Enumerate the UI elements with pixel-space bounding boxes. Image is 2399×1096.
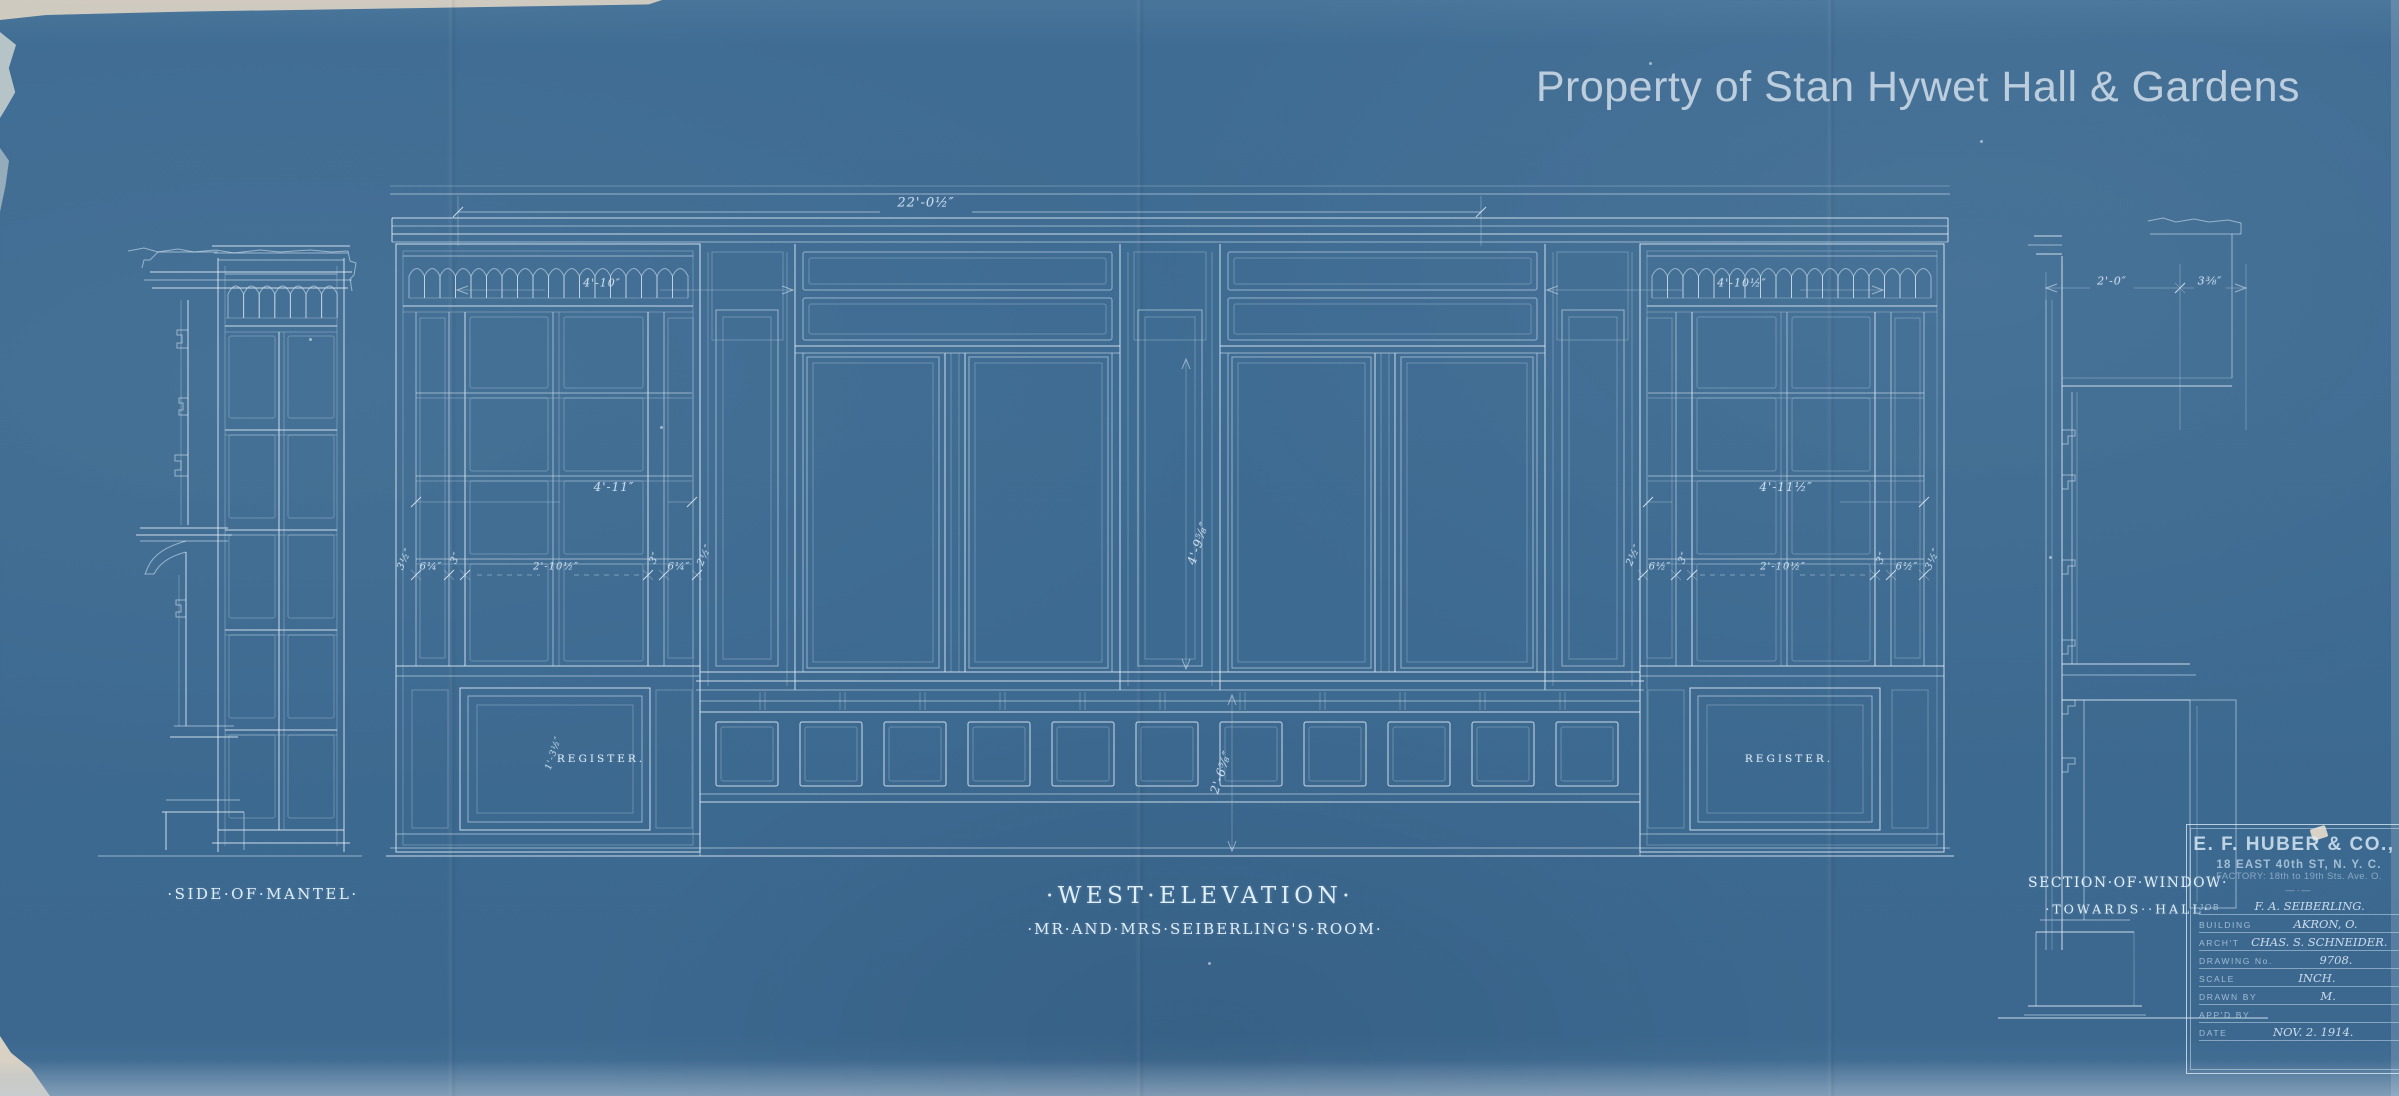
west-elevation-title: ·WEST·ELEVATION· (1046, 883, 1354, 909)
title-block: E. F. HUBER & CO., 18 EAST 40th ST, N. Y… (2186, 824, 2399, 1074)
title-block-row-label: JOB (2199, 902, 2220, 914)
title-block-rows: JOBF. A. SEIBERLING.BUILDINGAKRON, O.ARC… (2199, 897, 2399, 1041)
title-block-row-label: DRAWING No. (2199, 956, 2273, 968)
dimension-label: 6½″ (1649, 562, 1672, 573)
title-block-row-label: SCALE (2199, 974, 2235, 986)
dimension-label: 2'-10½″ (533, 562, 579, 573)
title-block-row-value: AKRON, O. (2252, 918, 2399, 932)
title-block-address2: FACTORY: 18th to 19th Sts. Ave. O. (2199, 871, 2399, 882)
dimension-label: 4'-11″ (594, 480, 635, 494)
dimension-label: 6¼″ (668, 562, 691, 573)
mantel-section-drawing (98, 246, 362, 856)
watermark-text: Property of Stan Hywet Hall & Gardens (1448, 62, 2300, 114)
register-label-right: REGISTER. (1745, 753, 1833, 765)
title-block-row-value: F. A. SEIBERLING. (2220, 900, 2399, 914)
register-label-left: REGISTER. (557, 753, 645, 765)
dimension-label: 6½″ (1896, 562, 1919, 573)
title-block-row: APP'D BY (2199, 1005, 2399, 1023)
title-block-row-value: INCH. (2235, 972, 2399, 986)
title-block-row: ARCH'TCHAS. S. SCHNEIDER. (2199, 933, 2399, 951)
title-block-row-value: CHAS. S. SCHNEIDER. (2240, 936, 2399, 950)
title-block-row-value: NOV. 2. 1914. (2227, 1026, 2399, 1040)
title-block-row: SCALEINCH. (2199, 969, 2399, 987)
window-pair-left (795, 252, 1120, 672)
title-block-divider: —·— (2199, 885, 2399, 895)
title-block-company: E. F. HUBER & CO., (2189, 834, 2399, 856)
title-block-row-value (2250, 1021, 2399, 1022)
side-of-mantel-label: ·SIDE·OF·MANTEL· (167, 885, 358, 903)
title-block-row: JOBF. A. SEIBERLING. (2199, 897, 2399, 915)
title-block-row-label: DRAWN BY (2199, 992, 2257, 1004)
title-block-row-label: APP'D BY (2199, 1010, 2250, 1022)
dimension-label: 4'-10″ (583, 277, 621, 290)
title-block-row-value: 9708. (2273, 954, 2399, 968)
title-block-row: BUILDINGAKRON, O. (2199, 915, 2399, 933)
dimension-label: 2'-0″ (2097, 275, 2127, 288)
dimension-label: 22'-0½″ (897, 196, 954, 211)
window-piers (700, 244, 1640, 690)
dimension-label: 4'-11½″ (1759, 480, 1812, 494)
dimension-label: 2'-10½″ (1760, 562, 1806, 573)
title-block-row: DRAWN BYM. (2199, 987, 2399, 1005)
title-block-row-label: ARCH'T (2199, 938, 2240, 950)
title-block-row: DATENOV. 2. 1914. (2199, 1023, 2399, 1041)
title-block-row-label: BUILDING (2199, 920, 2252, 932)
dimension-label: 6¼″ (420, 562, 443, 573)
title-block-address1: 18 EAST 40th ST, N. Y. C. (2199, 859, 2399, 871)
dimension-label: 4'-10½″ (1717, 277, 1767, 290)
title-block-row-value: M. (2257, 990, 2399, 1004)
window-pair-right (1220, 252, 1545, 672)
title-block-row-label: DATE (2199, 1028, 2227, 1040)
blueprint-scan: { "watermark": "Property of Stan Hywet H… (0, 0, 2399, 1096)
title-block-inner: E. F. HUBER & CO., 18 EAST 40th ST, N. Y… (2190, 828, 2399, 1070)
title-block-row: DRAWING No.9708. (2199, 951, 2399, 969)
room-subtitle: ·MR·AND·MRS·SEIBERLING'S·ROOM· (1027, 920, 1382, 938)
dimension-label: 3⅜″ (2198, 275, 2223, 288)
